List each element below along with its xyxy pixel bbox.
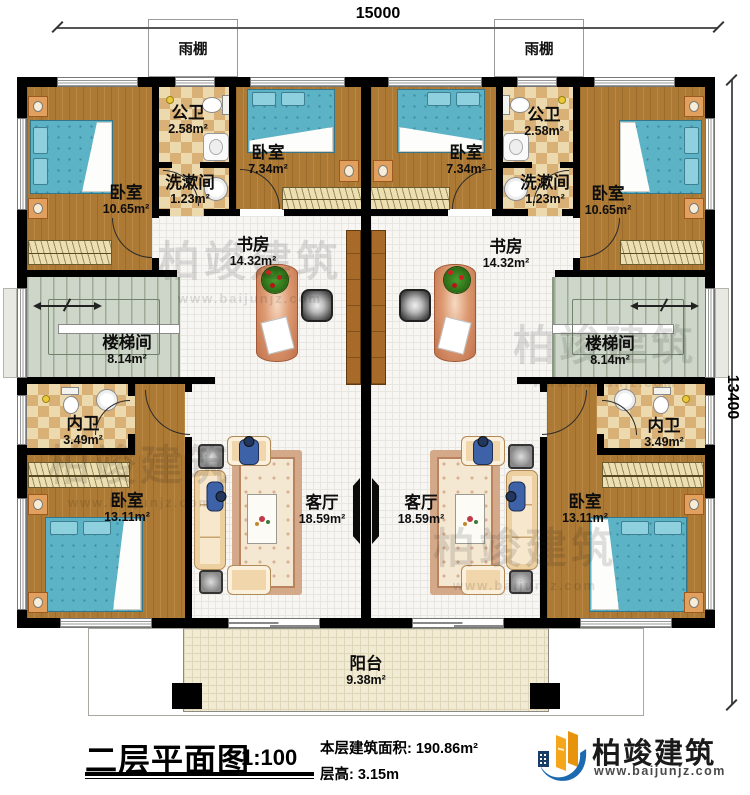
title-underline bbox=[85, 778, 314, 779]
room-name: 客厅 bbox=[398, 494, 445, 512]
wall-segment bbox=[236, 209, 240, 216]
pillow bbox=[252, 92, 276, 106]
room-label-bedroom-bottom-left: 卧室13.11m² bbox=[104, 492, 150, 524]
room-area: 13.11m² bbox=[562, 511, 608, 525]
wall-segment bbox=[573, 87, 580, 218]
wall-segment bbox=[672, 618, 715, 628]
pillow bbox=[33, 127, 48, 154]
sliding-door bbox=[412, 618, 504, 628]
room-area: 2.58m² bbox=[168, 122, 208, 136]
room-label-wash-right: 洗漱间1.23m² bbox=[520, 174, 570, 206]
wall-segment bbox=[17, 87, 27, 118]
canopy-label: 雨棚 bbox=[525, 38, 554, 59]
window-sill-right bbox=[715, 288, 729, 378]
arrow-head bbox=[94, 302, 102, 310]
window bbox=[17, 288, 27, 378]
side-table bbox=[508, 444, 534, 469]
wall-segment bbox=[17, 210, 27, 288]
wall-segment bbox=[345, 77, 388, 87]
room-label-living-left: 客厅18.59m² bbox=[299, 494, 346, 526]
room-name: 卧室 bbox=[585, 185, 632, 203]
pillow bbox=[654, 521, 682, 535]
room-label-balcony: 阳台9.38m² bbox=[346, 655, 386, 687]
pillow bbox=[684, 158, 699, 185]
arrow-head bbox=[33, 302, 41, 310]
room-label-stair-right: 楼梯间8.14m² bbox=[585, 335, 635, 367]
pillow bbox=[621, 521, 649, 535]
room-area: 1.23m² bbox=[520, 192, 570, 206]
wall-party bbox=[361, 87, 371, 618]
wall-segment bbox=[555, 270, 705, 277]
wall-segment bbox=[705, 210, 715, 288]
wall-segment bbox=[27, 377, 180, 384]
wall-segment bbox=[705, 87, 715, 118]
nightstand bbox=[28, 494, 48, 515]
room-name: 公卫 bbox=[524, 106, 564, 124]
toilet bbox=[653, 396, 669, 414]
room-area: 13.11m² bbox=[104, 510, 150, 524]
toilet bbox=[63, 396, 79, 414]
window bbox=[17, 498, 27, 610]
office-chair bbox=[399, 289, 431, 322]
window bbox=[60, 618, 152, 628]
wall-segment bbox=[17, 378, 27, 395]
wall-segment bbox=[17, 610, 27, 618]
wall-segment bbox=[320, 618, 412, 628]
office-chair bbox=[301, 289, 333, 322]
room-name: 卧室 bbox=[446, 144, 486, 162]
nightstand bbox=[684, 198, 704, 219]
window bbox=[594, 77, 675, 87]
bookshelf bbox=[371, 230, 386, 385]
sofa bbox=[461, 565, 505, 595]
window-sill-left bbox=[3, 288, 17, 378]
toilet bbox=[502, 95, 510, 115]
window bbox=[17, 395, 27, 445]
window bbox=[580, 618, 672, 628]
pillow bbox=[50, 521, 78, 535]
window bbox=[517, 77, 557, 87]
room-label-bedroom-mid-left: 卧室7.34m² bbox=[248, 144, 288, 176]
wall-segment bbox=[204, 209, 236, 216]
room-label-wash-left: 洗漱间1.23m² bbox=[165, 174, 215, 206]
coffee-table bbox=[247, 494, 277, 544]
room-name: 楼梯间 bbox=[585, 335, 635, 353]
sliding-door bbox=[228, 618, 320, 628]
room-label-bath-inner-right: 内卫3.49m² bbox=[644, 417, 684, 449]
room-label-living-right: 客厅18.59m² bbox=[398, 494, 445, 526]
wall-segment bbox=[496, 87, 503, 216]
wall-segment bbox=[284, 209, 361, 216]
dimension-height: 13400 bbox=[723, 375, 741, 420]
room-name: 内卫 bbox=[644, 417, 684, 435]
room-name: 洗漱间 bbox=[165, 174, 215, 192]
wall-segment bbox=[482, 77, 517, 87]
window bbox=[57, 77, 138, 87]
light-fixture bbox=[42, 395, 50, 403]
window bbox=[17, 118, 27, 210]
room-area: 14.32m² bbox=[483, 256, 530, 270]
wall-segment bbox=[215, 77, 250, 87]
nightstand bbox=[684, 494, 704, 515]
wardrobe bbox=[282, 187, 362, 210]
floor-area-text: 本层建筑面积: 190.86m² bbox=[320, 737, 478, 758]
room-area: 1.23m² bbox=[165, 192, 215, 206]
room-name: 书房 bbox=[483, 238, 530, 256]
wardrobe bbox=[620, 240, 704, 265]
nightstand bbox=[339, 160, 359, 182]
nightstand bbox=[28, 96, 48, 117]
pillow bbox=[427, 92, 451, 106]
brand-website: www.baijunjz.com bbox=[594, 764, 726, 778]
wall-segment bbox=[492, 209, 496, 216]
room-area: 7.34m² bbox=[248, 162, 288, 176]
wall-segment bbox=[540, 437, 547, 618]
balcony-post bbox=[530, 683, 560, 709]
wall-segment bbox=[517, 377, 555, 384]
wall-segment bbox=[705, 610, 715, 618]
title-underline bbox=[85, 772, 314, 776]
nightstand bbox=[28, 592, 48, 613]
wall-segment bbox=[557, 77, 594, 87]
room-area: 3.49m² bbox=[644, 435, 684, 449]
wall-segment bbox=[562, 209, 580, 216]
floor-plan: 15000 13400 雨棚 雨棚 bbox=[0, 0, 750, 795]
wall-segment bbox=[27, 448, 135, 455]
wall-segment bbox=[675, 77, 715, 87]
toilet bbox=[653, 387, 671, 395]
window bbox=[705, 288, 715, 378]
arrow-head bbox=[630, 302, 638, 310]
room-label-study-left: 书房14.32m² bbox=[230, 236, 277, 268]
window bbox=[250, 77, 345, 87]
room-label-bedroom-top-left: 卧室10.65m² bbox=[103, 184, 150, 216]
room-name: 客厅 bbox=[299, 494, 346, 512]
wall-segment bbox=[705, 445, 715, 498]
window bbox=[705, 395, 715, 445]
wall-segment bbox=[152, 618, 228, 628]
room-name: 内卫 bbox=[63, 415, 103, 433]
room-area: 9.38m² bbox=[346, 673, 386, 687]
pillow bbox=[281, 92, 305, 106]
wall-segment bbox=[371, 209, 448, 216]
plan-scale: 1:100 bbox=[241, 745, 297, 771]
wardrobe bbox=[28, 462, 130, 488]
wall-segment bbox=[128, 384, 135, 396]
person-figure bbox=[509, 482, 526, 512]
room-label-bedroom-mid-right: 卧室7.34m² bbox=[446, 144, 486, 176]
wall-segment bbox=[17, 445, 27, 498]
nightstand bbox=[28, 198, 48, 219]
wall-segment bbox=[200, 162, 236, 168]
wall-segment bbox=[17, 618, 60, 628]
wardrobe bbox=[28, 240, 112, 265]
light-fixture bbox=[558, 96, 566, 104]
pillow bbox=[33, 158, 48, 185]
person-figure bbox=[207, 482, 224, 512]
nightstand bbox=[684, 96, 704, 117]
wall-segment bbox=[27, 270, 177, 277]
room-name: 楼梯间 bbox=[102, 334, 152, 352]
wall-segment bbox=[496, 209, 528, 216]
coffee-table bbox=[455, 494, 485, 544]
light-fixture bbox=[682, 395, 690, 403]
side-table bbox=[509, 570, 533, 594]
wardrobe bbox=[602, 462, 704, 488]
nightstand bbox=[373, 160, 393, 182]
wall-segment bbox=[138, 77, 175, 87]
wardrobe bbox=[370, 187, 450, 210]
wall-segment bbox=[705, 378, 715, 395]
wall-segment bbox=[152, 209, 170, 216]
room-area: 7.34m² bbox=[446, 162, 486, 176]
wall-segment bbox=[496, 162, 532, 168]
wall-segment bbox=[177, 377, 215, 384]
window bbox=[705, 118, 715, 210]
bookshelf bbox=[346, 230, 361, 385]
washing-machine bbox=[203, 133, 229, 161]
room-area: 10.65m² bbox=[103, 202, 150, 216]
room-name: 书房 bbox=[230, 236, 277, 254]
wall-segment bbox=[152, 87, 159, 218]
room-name: 卧室 bbox=[562, 493, 608, 511]
room-label-bath-inner-left: 内卫3.49m² bbox=[63, 415, 103, 447]
brand-logo-icon bbox=[536, 726, 590, 786]
room-label-stair-left: 楼梯间8.14m² bbox=[102, 334, 152, 366]
room-label-study-right: 书房14.32m² bbox=[483, 238, 530, 270]
window bbox=[388, 77, 482, 87]
plant bbox=[262, 267, 288, 293]
sofa bbox=[227, 565, 271, 595]
room-name: 卧室 bbox=[103, 184, 150, 202]
wall-segment bbox=[597, 384, 604, 396]
room-name: 公卫 bbox=[168, 104, 208, 122]
balcony-post bbox=[172, 683, 202, 709]
dimension-width: 15000 bbox=[356, 5, 401, 23]
wall-segment bbox=[560, 162, 573, 168]
room-name: 卧室 bbox=[104, 492, 150, 510]
wall-segment bbox=[159, 162, 172, 168]
side-table bbox=[199, 570, 223, 594]
room-area: 8.14m² bbox=[585, 353, 635, 367]
window bbox=[175, 77, 215, 87]
floor-height-text: 层高: 3.15m bbox=[320, 763, 399, 784]
room-area: 3.49m² bbox=[63, 433, 103, 447]
room-area: 18.59m² bbox=[299, 512, 346, 526]
room-area: 14.32m² bbox=[230, 254, 277, 268]
room-area: 2.58m² bbox=[524, 124, 564, 138]
room-name: 卧室 bbox=[248, 144, 288, 162]
wall-segment bbox=[504, 618, 580, 628]
room-label-bedroom-bottom-right: 卧室13.11m² bbox=[562, 493, 608, 525]
room-label-bath-top-right: 公卫2.58m² bbox=[524, 106, 564, 138]
room-name: 阳台 bbox=[346, 655, 386, 673]
side-table bbox=[198, 444, 224, 469]
person-figure bbox=[473, 439, 493, 465]
wall-segment bbox=[17, 77, 57, 87]
room-label-bedroom-top-right: 卧室10.65m² bbox=[585, 185, 632, 217]
wall-segment bbox=[552, 377, 705, 384]
plant bbox=[444, 267, 470, 293]
pillow bbox=[456, 92, 480, 106]
arrow-head bbox=[691, 302, 699, 310]
window bbox=[705, 498, 715, 610]
wall-segment bbox=[229, 87, 236, 216]
room-name: 洗漱间 bbox=[520, 174, 570, 192]
canopy-label: 雨棚 bbox=[179, 38, 208, 59]
room-area: 8.14m² bbox=[102, 352, 152, 366]
wall-segment bbox=[185, 437, 192, 618]
dimension-line-top bbox=[57, 27, 718, 29]
room-area: 10.65m² bbox=[585, 203, 632, 217]
pillow bbox=[684, 127, 699, 154]
room-area: 18.59m² bbox=[398, 512, 445, 526]
room-label-bath-top-left: 公卫2.58m² bbox=[168, 104, 208, 136]
nightstand bbox=[684, 592, 704, 613]
person-figure bbox=[239, 439, 259, 465]
toilet bbox=[61, 387, 79, 395]
